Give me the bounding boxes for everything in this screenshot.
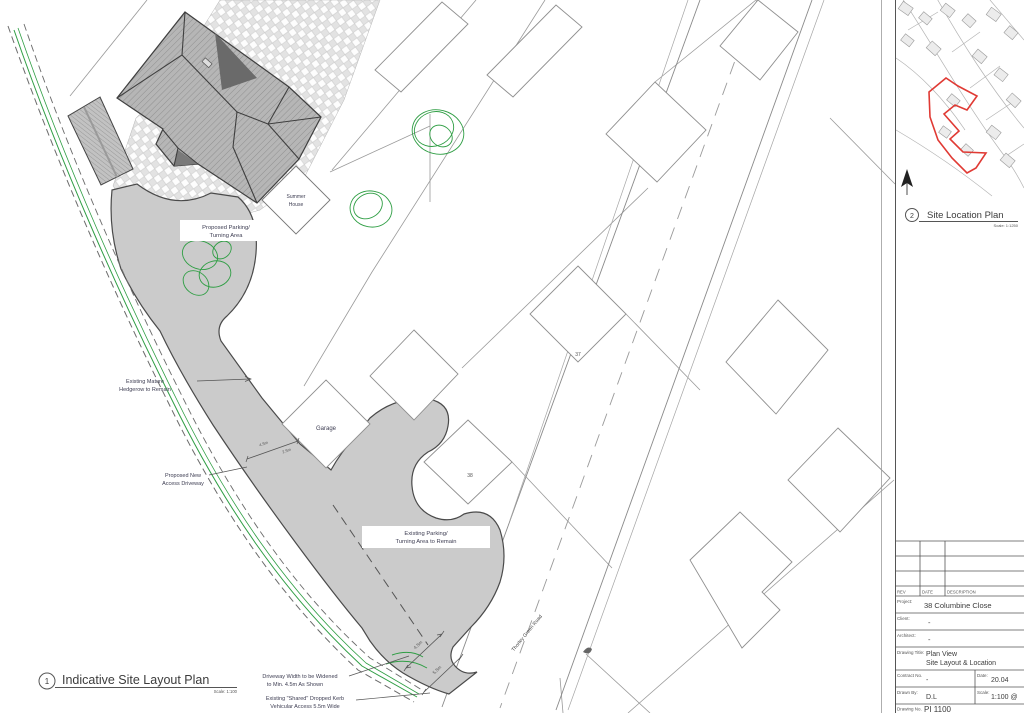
scale-label: Scale: (977, 690, 990, 695)
drawing-title-label: Drawing Title: (897, 650, 924, 655)
drawing-title-line2: Site Layout & Location (926, 660, 996, 667)
plot-37-label: 37 (575, 352, 581, 358)
layout-plan-number: 1 (45, 677, 50, 686)
kerb-label-1: Existing "Shared" Dropped Kerb (266, 696, 344, 702)
drawing-no-label: Drawing No. (897, 707, 922, 712)
description-header: DESCRIPTION (947, 590, 976, 595)
proposed-parking-label-2: Turning Area (210, 233, 244, 239)
plot-38-label: 38 (467, 473, 473, 479)
location-plan-scale: Scale: 1:1250 (994, 223, 1019, 228)
hedgerow-label-1: Existing Mature (126, 379, 164, 385)
location-plan-title: 2 Site Location Plan Scale: 1:1250 (906, 209, 1019, 229)
hedgerow-label-2: Hedgerow to Remain (119, 387, 171, 393)
location-plan-number: 2 (910, 213, 914, 220)
drawn-value: D.L (926, 694, 937, 701)
right-panel: 2 Site Location Plan Scale: 1:1250 (882, 0, 1024, 713)
summer-house-label-2: House (289, 202, 304, 208)
scale-value: 1:100 @ (991, 694, 1018, 701)
project-value: 38 Columbine Close (924, 601, 992, 610)
rev-header: REV (897, 590, 906, 595)
existing-parking-label-1: Existing Parking/ (404, 531, 448, 537)
existing-parking-label-2: Turning Area to Remain (395, 539, 456, 545)
bush-icon (347, 188, 395, 231)
widen-label-1: Driveway Width to be Widened (262, 674, 337, 680)
building-plot-37 (530, 266, 626, 362)
drawing-canvas: Summer House 4.5m 5.5m 4.5m 2.5m (0, 0, 1024, 713)
location-plan-title-text: Site Location Plan (927, 210, 1004, 221)
kerb-label-2: Vehicular Access 5.5m Wide (270, 704, 339, 710)
architect-label: Architect: (897, 633, 916, 638)
new-access-label-2: Access Driveway (162, 481, 204, 487)
site-boundary-red-outline (929, 78, 986, 173)
road-name-label: Thorley Green Road (511, 614, 544, 653)
project-label: Project: (897, 599, 912, 604)
proposed-parking-label-1: Proposed Parking/ (202, 225, 250, 231)
client-label: Client: (897, 616, 910, 621)
date-label: Date: (977, 673, 988, 678)
summer-house-label-1: Summer (287, 194, 306, 200)
garage-label: Garage (316, 426, 337, 432)
site-plan-drawing: Summer House 4.5m 5.5m 4.5m 2.5m (0, 0, 1024, 713)
contract-label: Contract No. (897, 673, 922, 678)
drawing-title-line1: Plan View (926, 651, 958, 658)
title-block: REV DATE DESCRIPTION Project: 38 Columbi… (895, 541, 1024, 713)
drawing-no-value: PI 1100 (924, 705, 952, 713)
new-access-label-1: Proposed New (165, 473, 201, 479)
layout-plan-scale: Scale: 1:100 (214, 689, 238, 694)
drawn-label: Drawn By: (897, 690, 918, 695)
road-marking (583, 648, 592, 654)
widen-label-2: to Min. 4.5m As Shown (267, 682, 323, 688)
date-header: DATE (922, 590, 933, 595)
outbuilding-roof (68, 97, 133, 185)
layout-plan-title-text: Indicative Site Layout Plan (62, 673, 209, 687)
architect-value: - (928, 635, 931, 644)
client-value: - (928, 618, 931, 627)
location-map (896, 0, 1024, 196)
contract-value: - (926, 677, 929, 684)
layout-plan-title: 1 Indicative Site Layout Plan Scale: 1:1… (39, 673, 238, 694)
date-value: 20.04 (991, 677, 1009, 684)
north-arrow-icon (901, 169, 913, 195)
